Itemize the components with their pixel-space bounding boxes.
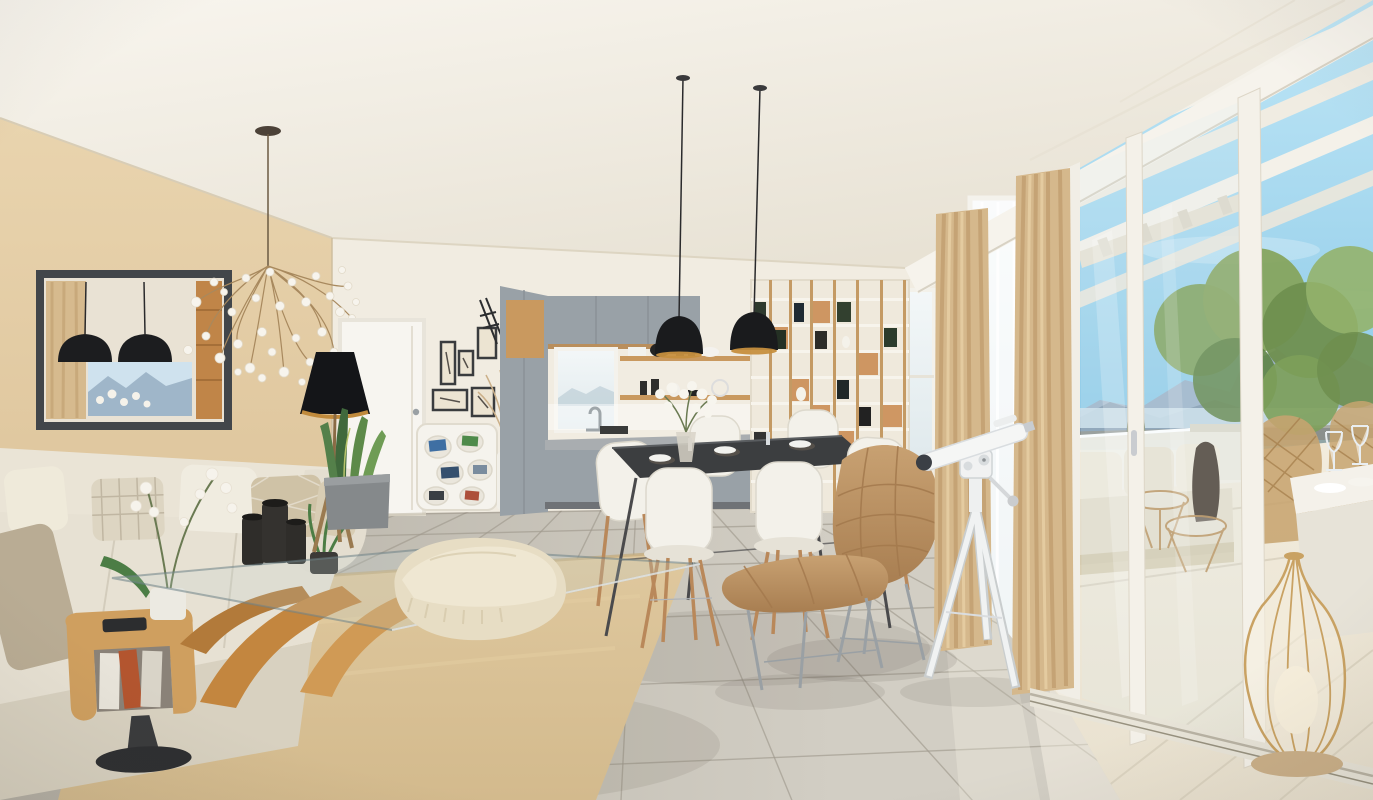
apartment-interior-render — [0, 0, 1373, 800]
interior-scene-svg — [0, 0, 1373, 800]
vignette-overlay — [0, 0, 1373, 800]
